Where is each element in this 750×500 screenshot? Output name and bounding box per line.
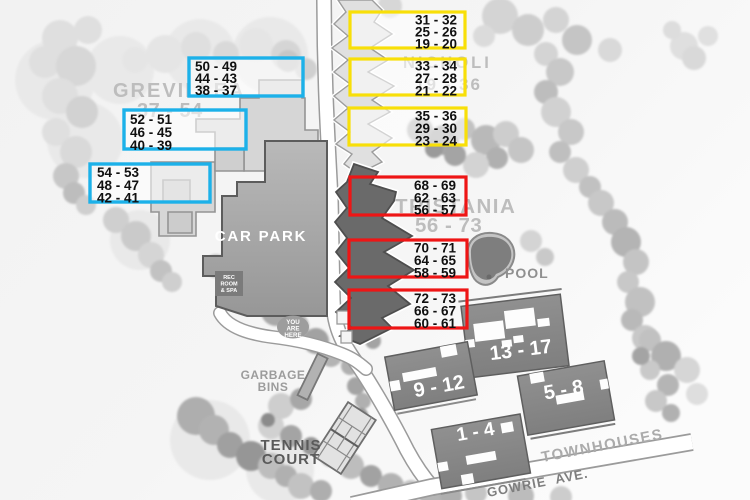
svg-text:42 - 41: 42 - 41 <box>97 191 140 206</box>
svg-text:19 - 20: 19 - 20 <box>415 37 457 52</box>
svg-text:23 - 24: 23 - 24 <box>415 134 458 149</box>
svg-text:60 - 61: 60 - 61 <box>414 316 457 331</box>
svg-text:56 - 57: 56 - 57 <box>414 203 456 218</box>
svg-text:& SPA: & SPA <box>221 288 237 294</box>
svg-text:HERE: HERE <box>284 332 301 339</box>
svg-text:40 - 39: 40 - 39 <box>130 138 172 153</box>
svg-text:38 - 37: 38 - 37 <box>195 83 237 98</box>
svg-text:REC: REC <box>223 275 235 281</box>
svg-text:ROOM: ROOM <box>220 282 238 288</box>
svg-text:COURT: COURT <box>262 451 320 468</box>
svg-text:58 - 59: 58 - 59 <box>414 266 456 281</box>
svg-text:21 - 22: 21 - 22 <box>415 84 457 99</box>
svg-text:BINS: BINS <box>258 380 289 394</box>
svg-text:CAR PARK: CAR PARK <box>215 228 307 245</box>
svg-text:POOL: POOL <box>505 265 549 281</box>
